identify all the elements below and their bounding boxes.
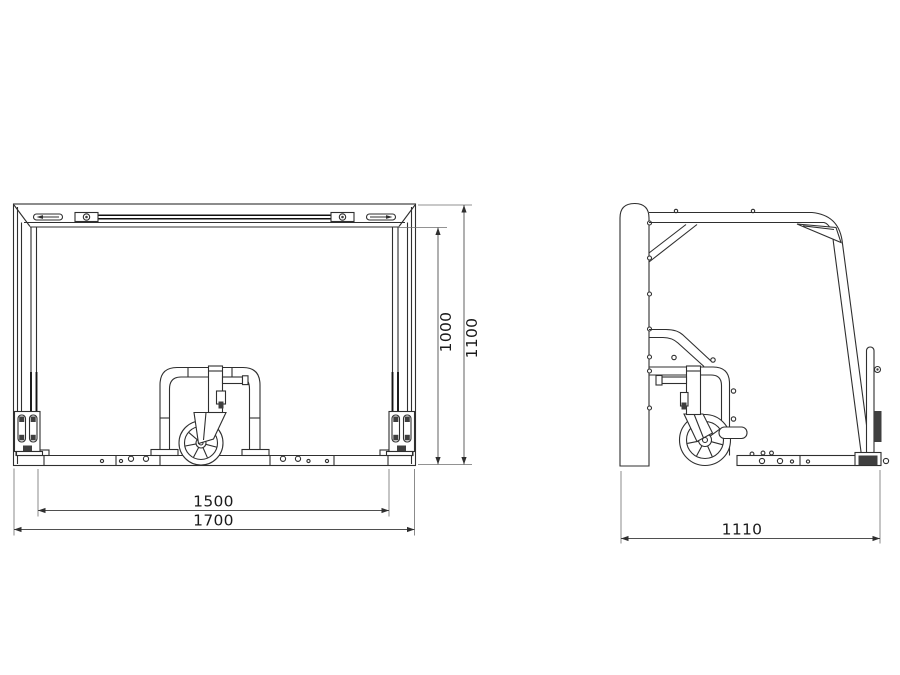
dim-label-inner-height: 1000 xyxy=(437,312,455,353)
caster-mount-front xyxy=(209,366,249,413)
corner-brace xyxy=(649,225,686,254)
dim-1110: 1110 xyxy=(621,470,880,544)
left-latch-bracket xyxy=(15,412,43,456)
dim-label-overall-height: 1100 xyxy=(463,318,481,359)
side-latch-bracket xyxy=(867,347,882,455)
side-post xyxy=(620,204,652,467)
top-slide-rail xyxy=(34,213,396,222)
caster-wheel-front xyxy=(179,413,226,466)
caster-handle xyxy=(223,377,243,384)
front-view: 1000 1100 1500 1700 xyxy=(14,204,482,536)
technical-drawing: 1000 1100 1500 1700 xyxy=(0,0,900,675)
caster-handle xyxy=(662,377,687,384)
right-latch-bracket xyxy=(387,412,415,456)
axle-stub xyxy=(719,427,747,439)
bend-gusset xyxy=(797,224,841,243)
caster-mount-side xyxy=(656,366,701,415)
dim-1500: 1500 xyxy=(38,469,389,517)
dim-label-overall-depth: 1110 xyxy=(722,521,763,539)
dim-label-inner-width: 1500 xyxy=(193,493,234,511)
side-bottom-rail xyxy=(737,451,889,465)
side-top-tube xyxy=(649,209,871,455)
dim-label-overall-width: 1700 xyxy=(193,512,234,530)
side-view: 1110 xyxy=(620,204,889,544)
